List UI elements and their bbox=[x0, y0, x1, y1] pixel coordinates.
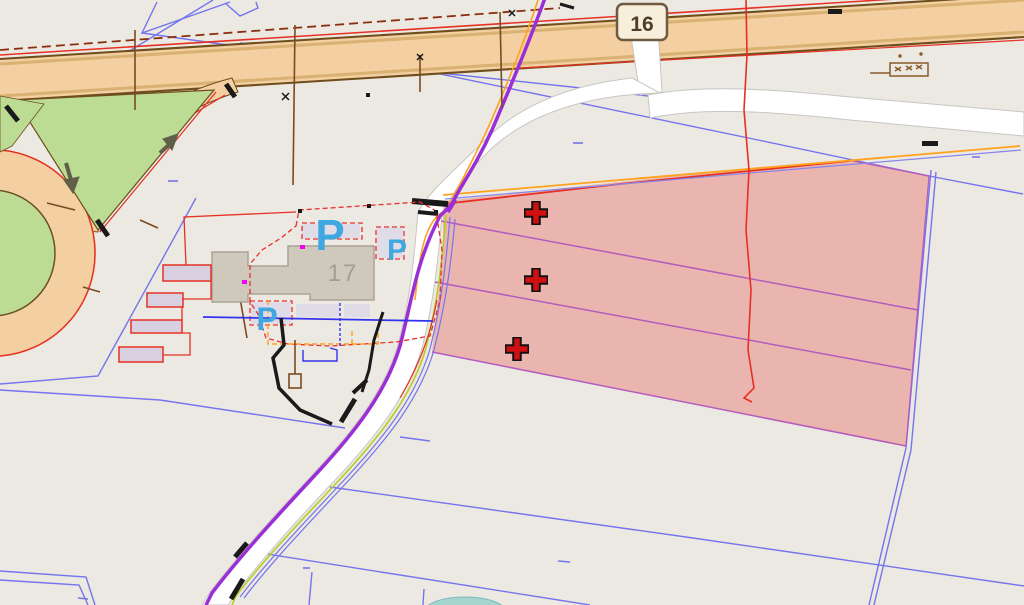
cable-dash bbox=[922, 141, 938, 146]
cable-dash bbox=[828, 9, 842, 14]
parking-label-3: P bbox=[256, 301, 277, 337]
route-badge: 16 bbox=[617, 4, 667, 40]
building-number-label: 17 bbox=[328, 260, 359, 287]
parking-label-2: P bbox=[387, 234, 407, 267]
parking-label-1: P bbox=[315, 211, 344, 260]
route-badge-label: 16 bbox=[630, 13, 653, 36]
map-canvas[interactable]: 16 17 P P P bbox=[0, 0, 1024, 605]
